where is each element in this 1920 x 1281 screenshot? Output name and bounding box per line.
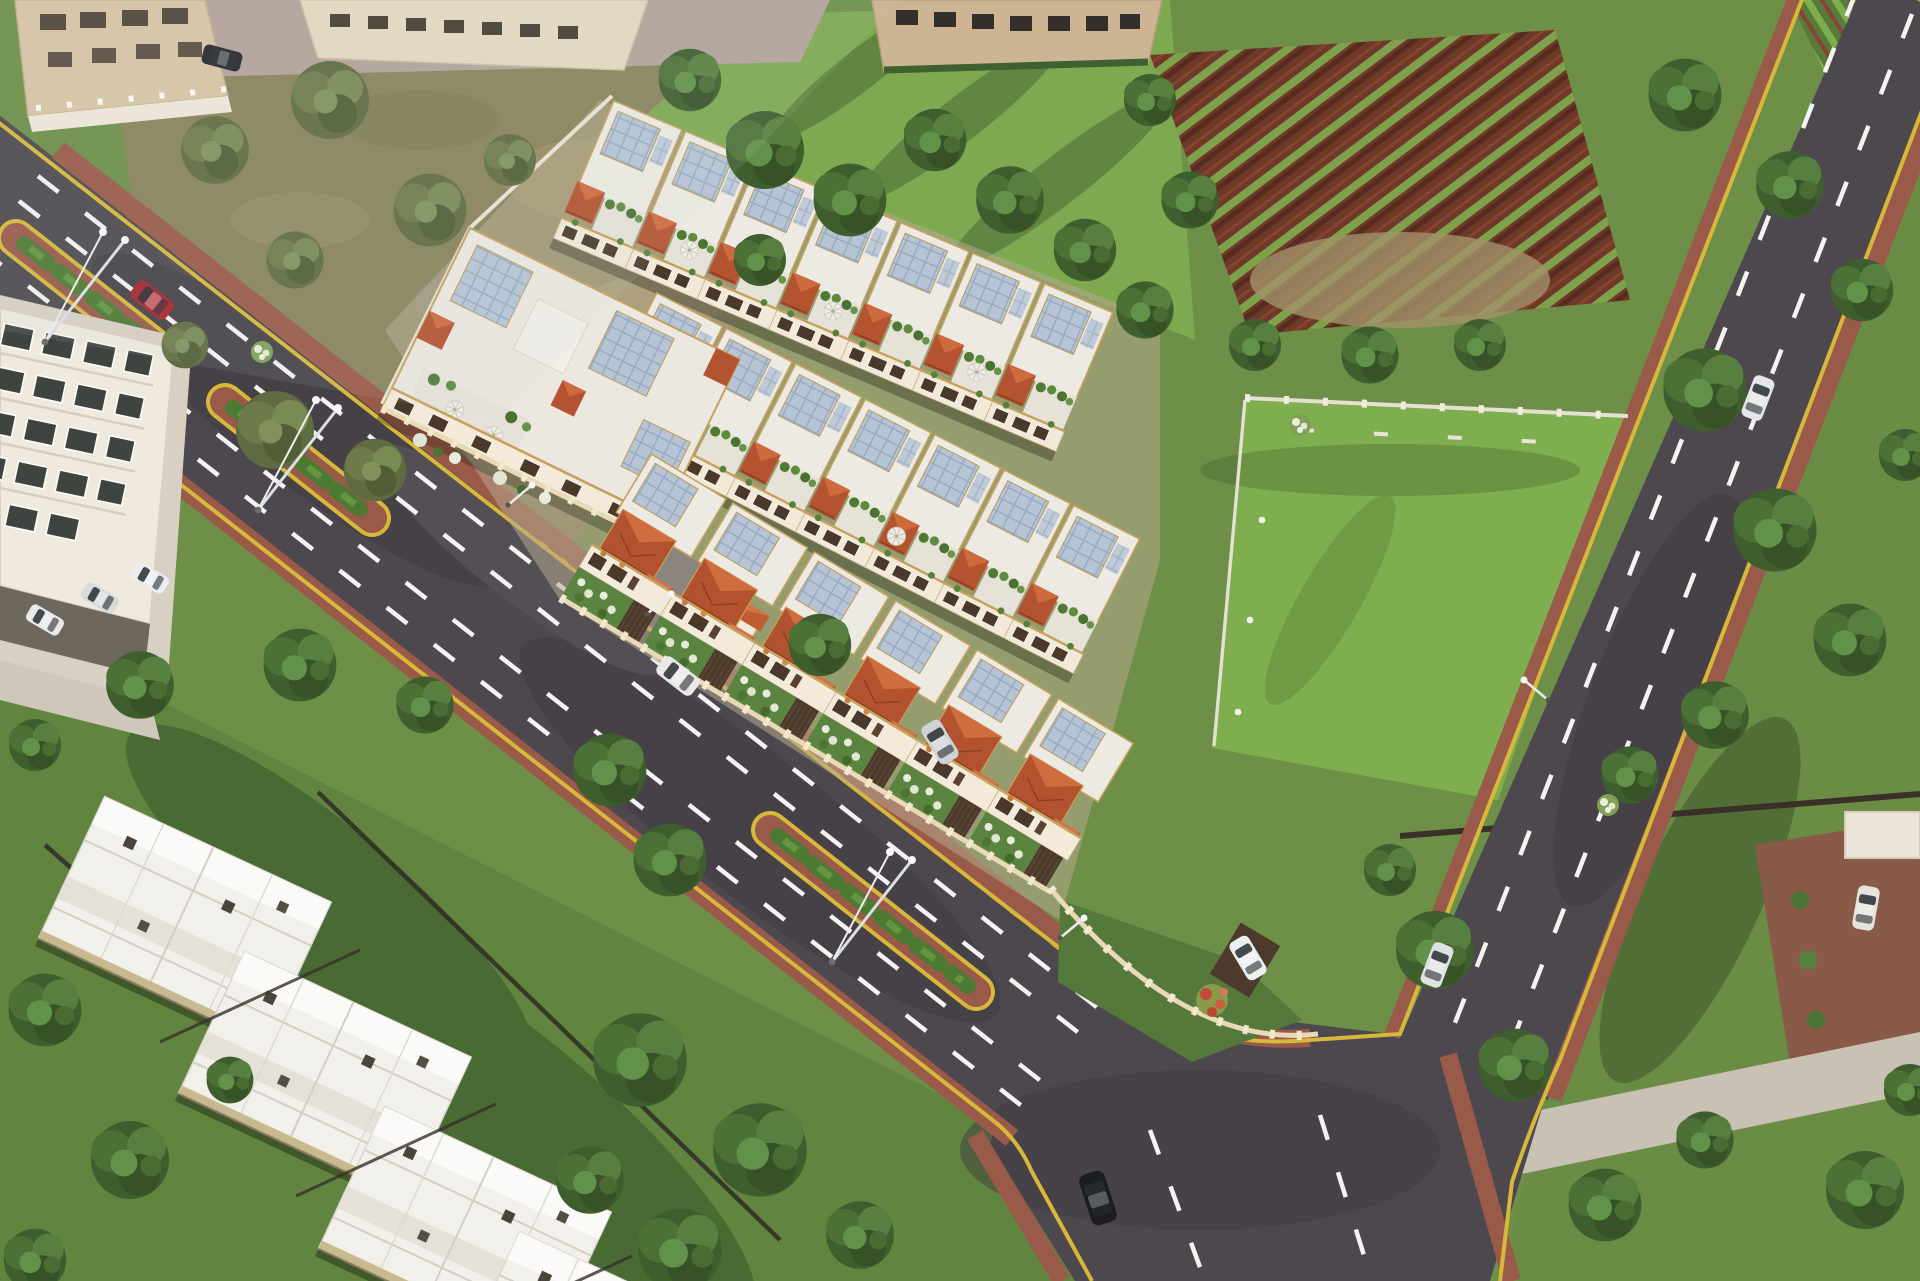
render-canvas <box>0 0 1920 1281</box>
beige-slab-top-centre <box>872 0 1162 72</box>
aerial-architectural-render <box>0 0 1920 1281</box>
courtyard-building <box>1845 812 1920 858</box>
dry-patch <box>1250 232 1550 328</box>
